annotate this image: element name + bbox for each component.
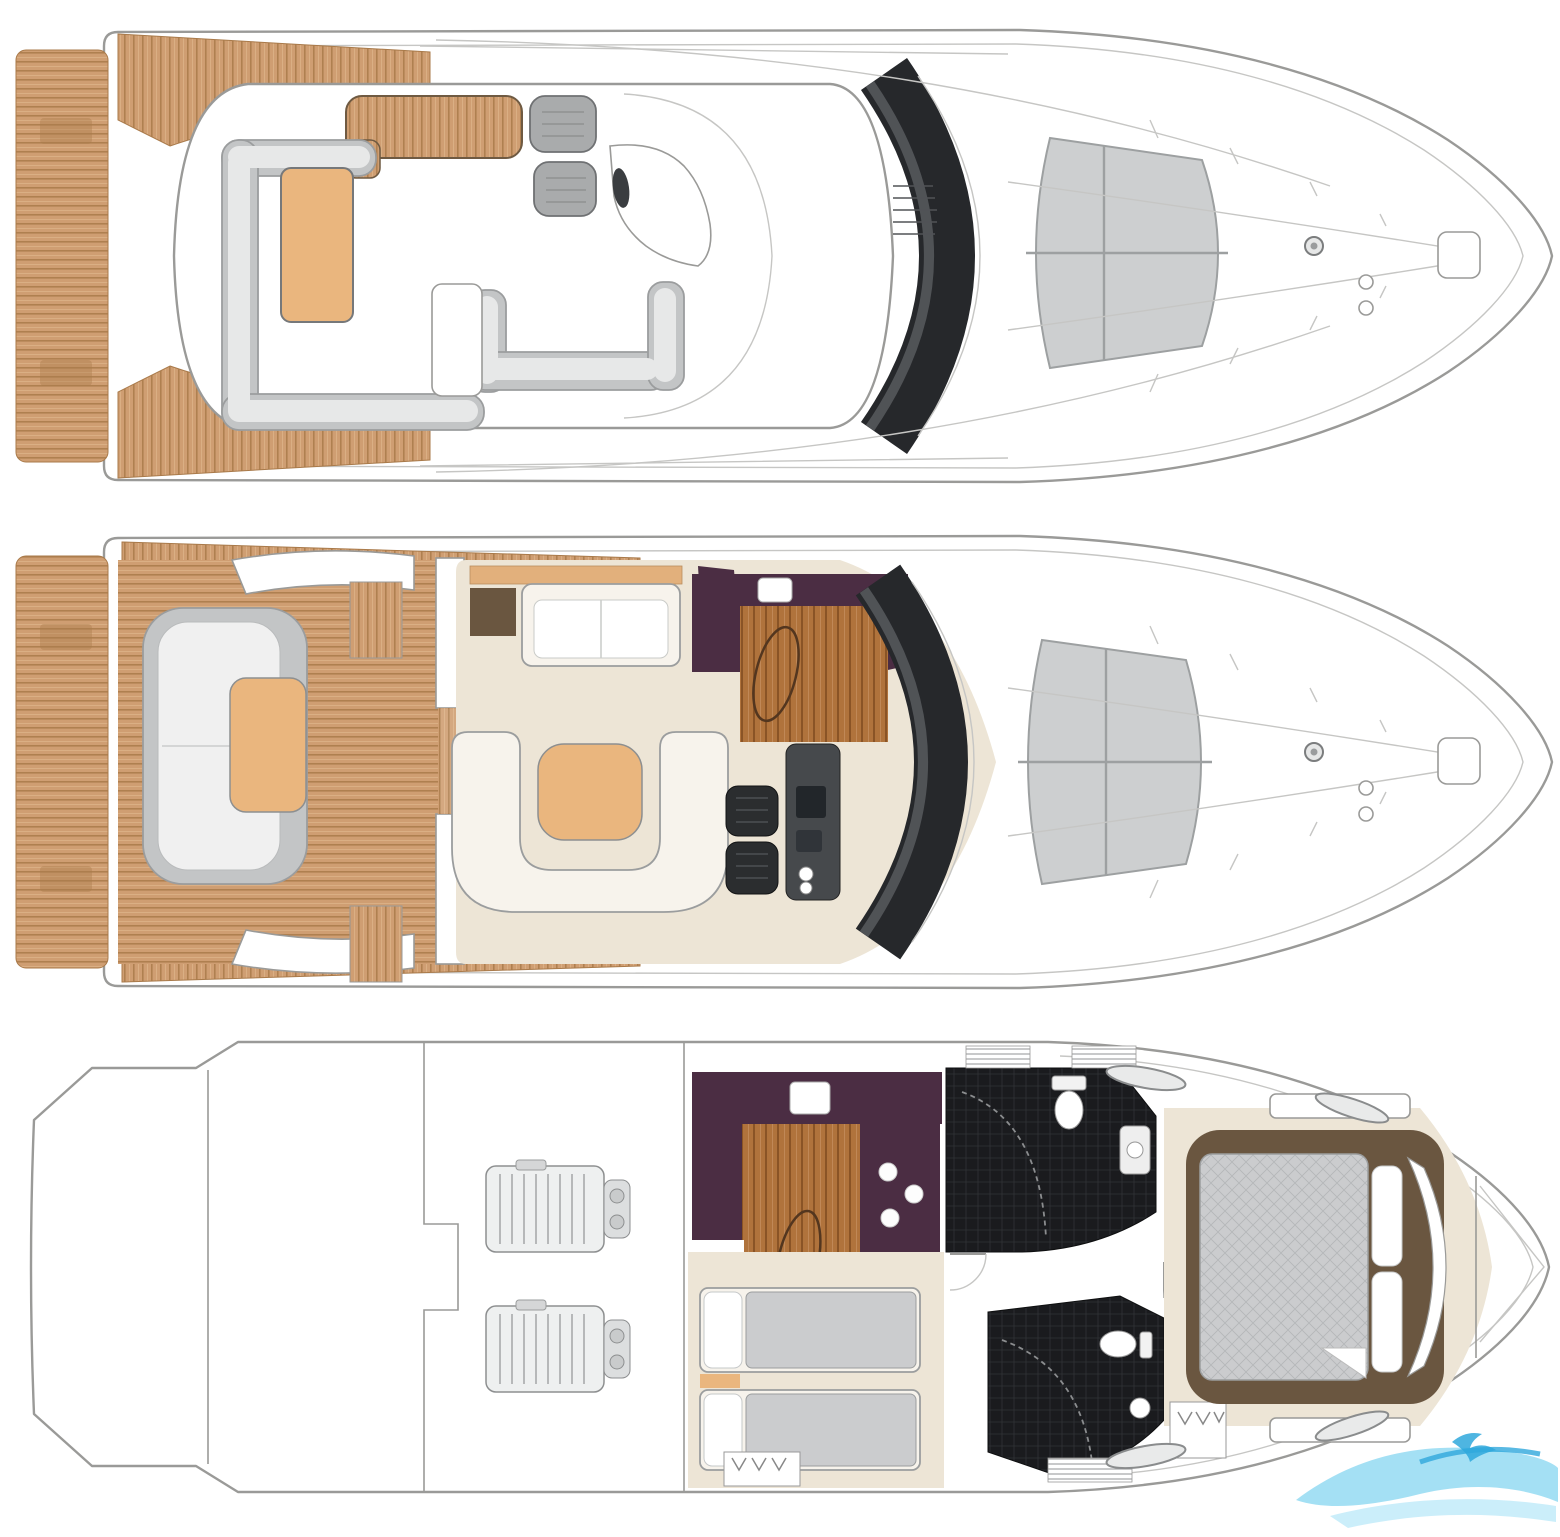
lower-deck-plan: [31, 1042, 1549, 1492]
master-pillow: [1372, 1272, 1402, 1372]
saloon-sofa: [522, 584, 680, 666]
bow-fitting: [1359, 781, 1373, 795]
flybridge-seat-module: [432, 284, 482, 396]
helm-seat: [726, 786, 778, 836]
galley-floor: [740, 606, 888, 742]
helm-seat: [726, 842, 778, 894]
washbasin: [1130, 1398, 1150, 1418]
bow-fitting: [1359, 301, 1373, 315]
walnut-cabinet: [470, 588, 516, 636]
louver-locker: [966, 1046, 1030, 1068]
flybridge-table: [281, 168, 353, 322]
master-pillow: [1372, 1166, 1402, 1266]
twin-cabin-bed: [700, 1288, 920, 1372]
flybridge-deck-plan: [16, 30, 1552, 482]
helm-seat: [530, 96, 596, 152]
swim-platform-step: [40, 866, 92, 892]
toilet: [1100, 1331, 1152, 1358]
swim-platform-step: [40, 118, 92, 144]
flybridge-ladder: [350, 582, 402, 658]
yacht-floorplan-image: [0, 0, 1560, 1537]
helm-console: [786, 744, 840, 900]
coffee-ottoman: [538, 744, 642, 840]
galley-sink: [790, 1082, 830, 1114]
swim-platform: [16, 50, 108, 462]
cockpit-sunbed: [143, 608, 307, 884]
bow-fitting: [1359, 807, 1373, 821]
anchor-windlass-center: [1311, 749, 1318, 756]
swim-platform-step: [40, 624, 92, 650]
bow-hatch: [1438, 738, 1480, 784]
washbasin: [1120, 1126, 1150, 1174]
sideboard: [470, 566, 682, 584]
wardrobe: [724, 1452, 800, 1486]
galley-sink: [758, 578, 792, 602]
flybridge-ladder: [350, 906, 402, 982]
main-deck-plan: [16, 536, 1552, 988]
louver-locker: [1072, 1046, 1136, 1068]
watermark-logo: [1296, 1433, 1558, 1528]
helm-seat: [534, 162, 596, 216]
wave-swoosh-icon: [1296, 1448, 1558, 1506]
anchor-windlass-center: [1311, 243, 1318, 250]
swim-platform-step: [40, 360, 92, 386]
bow-fitting: [1359, 275, 1373, 289]
nightstand: [700, 1374, 740, 1388]
deck-plans-svg: [0, 0, 1560, 1537]
swim-platform: [16, 556, 108, 968]
bow-hatch: [1438, 232, 1480, 278]
toilet: [1052, 1076, 1086, 1129]
master-cabin-bed: [1200, 1154, 1368, 1380]
